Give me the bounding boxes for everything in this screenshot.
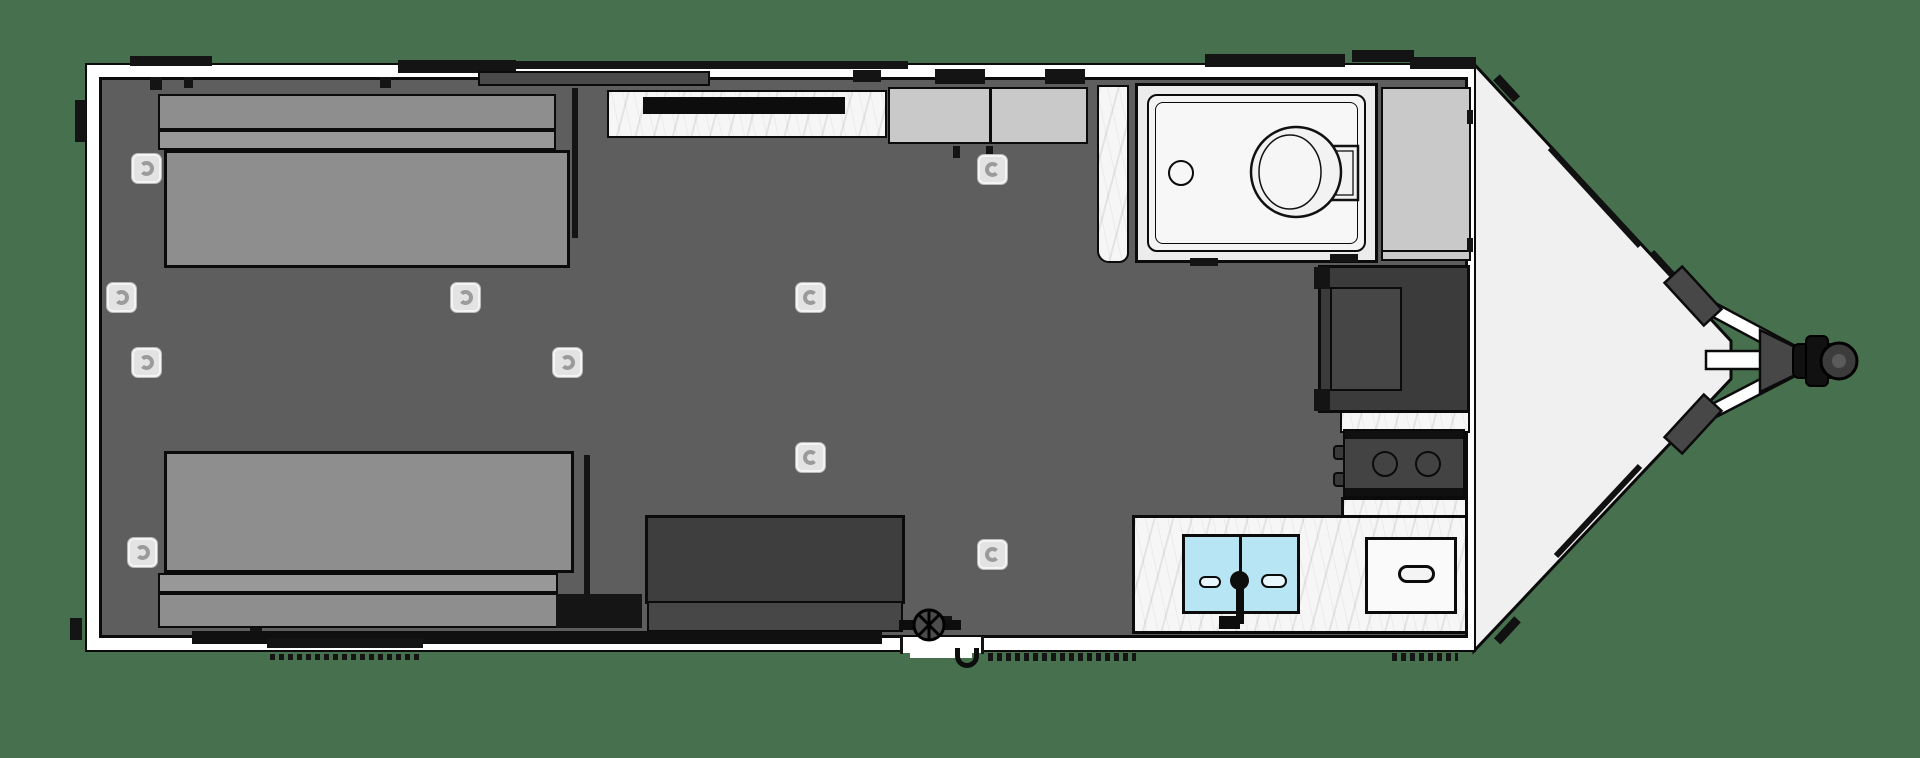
- entry-step: [267, 638, 423, 648]
- roof-bar-rear: [130, 56, 212, 66]
- cooktop-trim-bottom: [1345, 488, 1463, 496]
- ring-glyph: [458, 290, 473, 305]
- rear-hinge-bump: [75, 100, 86, 142]
- entry-door-jamb-right: [981, 636, 984, 654]
- refrigerator-hinge-bottom: [1314, 389, 1330, 411]
- ring-glyph: [560, 355, 575, 370]
- tie-down-ring: [127, 537, 158, 568]
- latch-tick-c: [380, 77, 391, 88]
- faucet-base: [1219, 616, 1240, 629]
- shower-drain: [1168, 160, 1194, 186]
- cooktop-trim-top: [1345, 431, 1463, 439]
- sink-drain-right: [1261, 574, 1287, 588]
- latch-tick-a: [150, 77, 162, 90]
- foot-storage-box: [556, 594, 642, 628]
- window-mark-a: [853, 70, 881, 82]
- tie-down-ring: [795, 442, 826, 473]
- sofa-bed-bottom-footboard: [158, 593, 558, 628]
- latch-tick-b: [184, 77, 193, 88]
- bench-table: [645, 515, 905, 604]
- tie-down-ring: [795, 282, 826, 313]
- tie-down-ring: [977, 539, 1008, 570]
- tie-down-ring: [131, 347, 162, 378]
- vent-symbol: [899, 605, 961, 647]
- ring-glyph: [985, 547, 1000, 562]
- cabinet-hinge-a: [953, 146, 960, 158]
- entry-step-shadow: [270, 654, 420, 660]
- roof-bar-front: [1205, 54, 1345, 67]
- window-mark-c: [1045, 69, 1085, 84]
- sofa-bed-bottom-rail: [584, 455, 590, 600]
- sink-drain-left: [1199, 576, 1221, 588]
- wardrobe-hinge-a: [1467, 110, 1473, 124]
- bench-table-base: [647, 601, 903, 632]
- hitch-cross-bar: [1706, 351, 1764, 369]
- tie-down-ring: [977, 154, 1008, 185]
- ring-glyph: [139, 355, 154, 370]
- toilet: [1240, 118, 1370, 230]
- burner-left: [1372, 451, 1398, 477]
- ring-glyph: [135, 545, 150, 560]
- tie-down-ring: [552, 347, 583, 378]
- refrigerator-door: [1330, 287, 1402, 391]
- trailer-floorplan: [0, 0, 1920, 758]
- v-nose-front: [1474, 64, 1731, 651]
- ring-glyph: [114, 290, 129, 305]
- ring-glyph: [139, 161, 154, 176]
- roof-step-b: [1410, 57, 1476, 69]
- awning-rail: [516, 61, 908, 69]
- tie-down-ring: [450, 282, 481, 313]
- refrigerator-hinge-top: [1314, 267, 1330, 289]
- rear-corner-jack: [70, 618, 82, 640]
- toilet-seat: [1259, 135, 1321, 209]
- overhead-cabinet: [888, 87, 1088, 144]
- cooktop-knob-a: [1333, 445, 1345, 460]
- step-shadow-right-b: [1392, 653, 1458, 661]
- ring-glyph: [803, 450, 818, 465]
- drawer-pull: [1398, 565, 1435, 583]
- step-shadow-right-a: [988, 653, 1136, 661]
- wardrobe-base-line: [1383, 250, 1469, 252]
- sofa-bed-bottom-pillow-band: [158, 573, 558, 593]
- sofa-bed-top-pillow-band: [158, 130, 556, 150]
- sofa-bed-top-mattress: [164, 150, 570, 268]
- hitch-ball-center: [1832, 354, 1846, 368]
- burner-right: [1415, 451, 1441, 477]
- roof-step-a: [1352, 50, 1414, 62]
- kitchen-window: [478, 71, 710, 86]
- tie-down-ring: [131, 153, 162, 184]
- sofa-bed-bottom-mattress: [164, 451, 574, 573]
- cooktop-knob-b: [1333, 472, 1345, 487]
- bath-threshold-a: [1190, 258, 1218, 266]
- bath-threshold-b: [1330, 254, 1358, 262]
- tie-down-ring: [106, 282, 137, 313]
- sofa-bed-top-rail: [572, 88, 578, 238]
- sofa-bed-top-headboard: [158, 94, 556, 130]
- window-mark-b: [935, 69, 985, 84]
- counter-end-panel: [1097, 85, 1129, 263]
- ring-glyph: [803, 290, 818, 305]
- ring-glyph: [985, 162, 1000, 177]
- wardrobe-cabinet: [1381, 87, 1471, 261]
- overhead-cabinet-divider: [989, 89, 992, 142]
- wardrobe-hinge-b: [1467, 238, 1473, 252]
- counter-appliance-inset: [643, 97, 845, 114]
